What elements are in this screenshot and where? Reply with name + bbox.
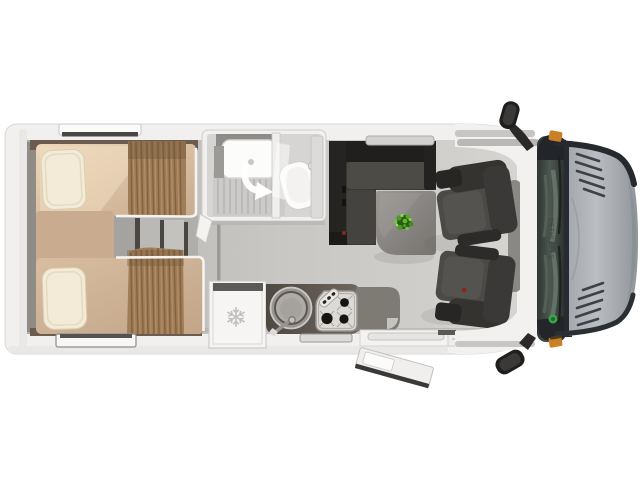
svg-text:DETHLEFFS: DETHLEFFS — [547, 218, 554, 260]
